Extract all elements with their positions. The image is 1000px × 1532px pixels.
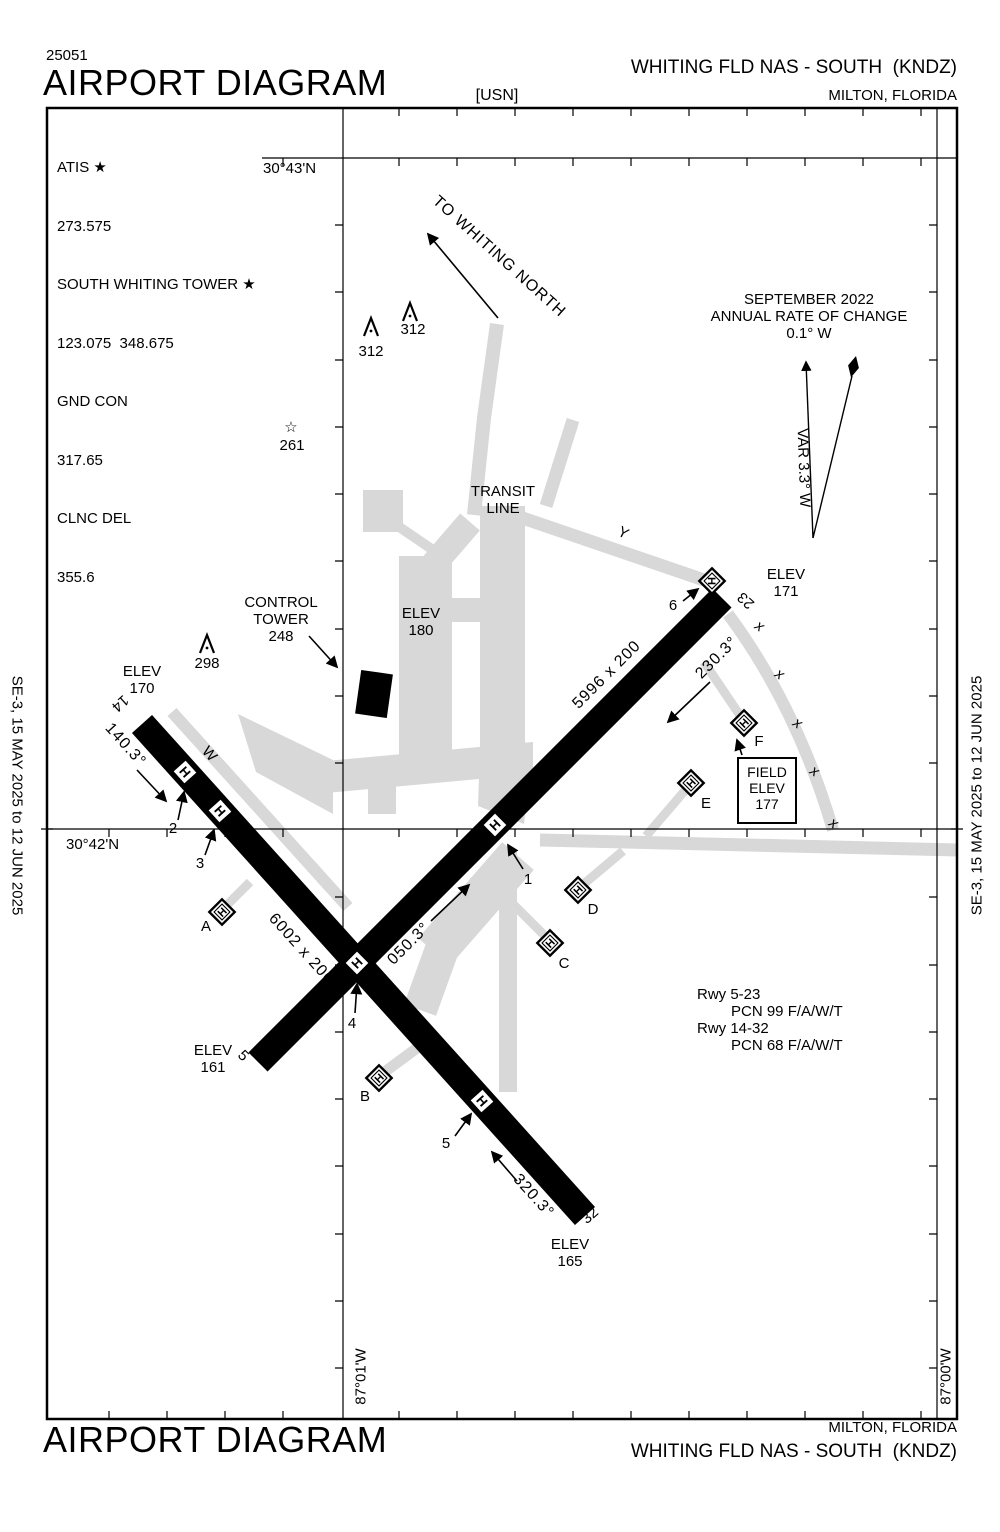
atis-freq: 273.575 <box>57 217 256 237</box>
helipad-label-f: F <box>754 733 763 750</box>
rwy23-elevation: ELEV 171 <box>746 566 826 600</box>
ticks-lat-top <box>283 158 921 166</box>
obstacle-elevation: 298 <box>194 655 219 672</box>
apron-areas <box>238 490 533 824</box>
apron-tab <box>368 768 396 814</box>
obstacle-icon <box>364 318 378 336</box>
effective-dates-left: SE-3, 15 MAY 2025 to 12 JUN 2025 <box>9 596 26 996</box>
helipad-label-d: D <box>588 901 599 918</box>
gnd-label: GND CON <box>57 392 256 412</box>
obstacle-elevation: 312 <box>400 321 425 338</box>
ticks-lon-w <box>335 225 343 1368</box>
obstacle-icon <box>403 303 417 321</box>
spot-arrow-3 <box>205 830 214 855</box>
clnc-freq: 355.6 <box>57 568 256 588</box>
control-tower-label: CONTROL TOWER 248 <box>231 594 331 645</box>
spot-label-6: 6 <box>669 597 677 614</box>
tower-label: SOUTH WHITING TOWER ★ <box>57 275 256 295</box>
magvar-date: SEPTEMBER 2022 <box>709 291 909 308</box>
closed-x-icon: x <box>751 617 768 636</box>
spot-arrow-6 <box>683 589 698 601</box>
airport-city: MILTON, FLORIDA <box>828 87 957 104</box>
apron-elevation-label: ELEV 180 <box>381 605 461 639</box>
helipad-diamond-6: H <box>699 568 724 593</box>
spot-arrow-4 <box>355 984 357 1013</box>
spot-label-5: 5 <box>442 1135 450 1152</box>
spot-label-1: 1 <box>524 871 532 888</box>
rwy5-elevation: ELEV 161 <box>173 1042 253 1076</box>
longitude-label-east: 87°00'W <box>938 1337 955 1417</box>
magnetic-north-arrow <box>813 376 852 538</box>
taxiway-y <box>505 512 704 580</box>
latitude-label-bottom: 30°42'N <box>66 836 119 853</box>
tower-freq: 123.075 348.675 <box>57 334 256 354</box>
footer-title: AIRPORT DIAGRAM <box>43 1419 387 1461</box>
apron-main <box>399 556 452 756</box>
helipad-label-c: C <box>559 955 570 972</box>
helipad-label-e: E <box>701 795 711 812</box>
svg-text:H: H <box>705 577 717 585</box>
spot-arrow-5 <box>455 1114 471 1136</box>
helipad-label-b: B <box>360 1088 370 1105</box>
spot-label-4: 4 <box>348 1015 356 1032</box>
pcn-note: Rwy 5-23 PCN 99 F/A/W/T Rwy 14-32 PCN 68… <box>697 986 843 1054</box>
footer-city: MILTON, FLORIDA <box>828 1419 957 1436</box>
rwy14-elevation: ELEV 170 <box>102 663 182 697</box>
rwy32-elevation: ELEV 165 <box>530 1236 610 1270</box>
star-obstacle-icon: ☆ <box>284 419 297 436</box>
atis-label: ATIS ★ <box>57 158 256 178</box>
ticks-lon-e <box>929 225 937 1368</box>
control-tower-building <box>355 670 393 718</box>
to-whiting-north-label: TO WHITING NORTH <box>429 193 569 321</box>
stub-d <box>579 851 623 888</box>
var-label: VAR 3.3° W <box>794 428 814 508</box>
magvar-note: SEPTEMBER 2022 ANNUAL RATE OF CHANGE 0.1… <box>709 291 909 342</box>
comm-frequencies: ATIS ★ 273.575 SOUTH WHITING TOWER ★ 123… <box>57 119 256 626</box>
apron-nw-pad <box>363 490 403 532</box>
effective-dates-right: SE-3, 15 MAY 2025 to 12 JUN 2025 <box>969 596 986 996</box>
heading-arrow-230 <box>668 682 710 722</box>
magvar-rate: ANNUAL RATE OF CHANGE <box>709 308 909 325</box>
apron-right-band <box>480 506 525 754</box>
field-elevation-box: FIELD ELEV 177 <box>737 757 797 824</box>
parallel-se-lower <box>420 938 446 1010</box>
taxiway-y-label: Y <box>615 523 632 543</box>
org-label: [USN] <box>447 87 547 105</box>
perimeter-road <box>540 840 958 850</box>
airport-diagram-page: x x x x x 14 32 5 23 5996 x 200 6002 x 2… <box>0 0 1000 1532</box>
magnetic-north-arrowhead-icon <box>848 356 859 377</box>
page-title: AIRPORT DIAGRAM <box>43 62 387 104</box>
magvar-value: 0.1° W <box>709 325 909 342</box>
obstacle-elevation: 312 <box>358 343 383 360</box>
spot-label-2: 2 <box>169 820 177 837</box>
latitude-label-top: 30°43'N <box>263 160 316 177</box>
clnc-label: CLNC DEL <box>57 509 256 529</box>
helipad-label-a: A <box>201 918 211 935</box>
footer-airport-name: WHITING FLD NAS - SOUTH (KNDZ) <box>631 1441 957 1463</box>
magvar-arrows <box>806 362 852 538</box>
airport-name: WHITING FLD NAS - SOUTH (KNDZ) <box>631 57 957 79</box>
transit-line-label: TRANSIT LINE <box>453 483 553 517</box>
obstacle-icon <box>200 635 214 653</box>
gnd-freq: 317.65 <box>57 451 256 471</box>
spot-label-3: 3 <box>196 855 204 872</box>
longitude-label-west: 87°01'W <box>353 1337 370 1417</box>
field-elev-arrow <box>737 740 742 755</box>
spot-arrow-2 <box>178 792 184 820</box>
star-obstacle-elevation: 261 <box>279 437 304 454</box>
heading-arrow-140 <box>137 770 166 801</box>
